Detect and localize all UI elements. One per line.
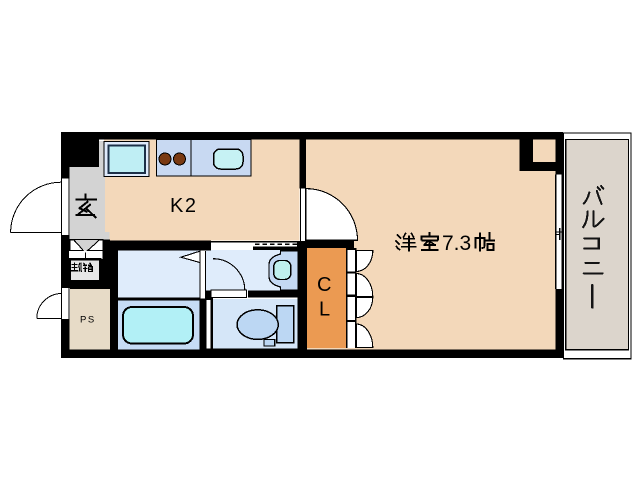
svg-text:K2: K2 <box>170 195 197 217</box>
svg-text:7.3: 7.3 <box>442 232 471 255</box>
svg-text:PS: PS <box>80 314 96 325</box>
svg-text:L: L <box>319 299 330 321</box>
svg-text:C: C <box>317 274 331 296</box>
